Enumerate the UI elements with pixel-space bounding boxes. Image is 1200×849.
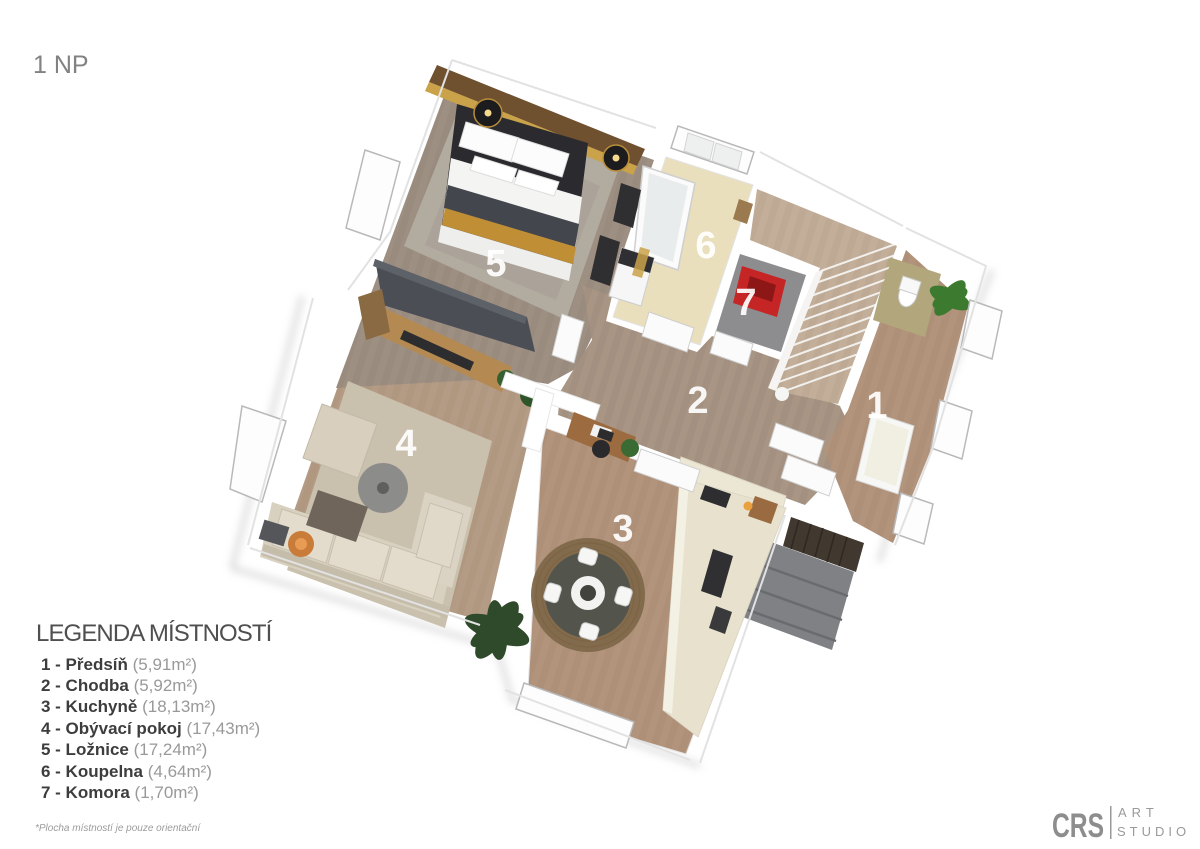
svg-text:5: 5 (485, 243, 506, 285)
svg-text:4: 4 (395, 423, 416, 465)
svg-text:2: 2 (687, 380, 708, 422)
svg-text:1 NP: 1 NP (33, 51, 89, 79)
svg-text:6: 6 (695, 225, 716, 267)
svg-text:7 - Komora (1,70m²): 7 - Komora (1,70m²) (41, 783, 199, 802)
svg-text:1 - Předsíň (5,91m²): 1 - Předsíň (5,91m²) (41, 655, 197, 674)
svg-text:2 - Chodba (5,92m²): 2 - Chodba (5,92m²) (41, 676, 198, 695)
svg-text:*Plocha místností je pouze ori: *Plocha místností je pouze orientační (35, 823, 201, 834)
svg-text:CRS: CRS (1052, 807, 1104, 845)
svg-text:STUDIO: STUDIO (1117, 824, 1190, 839)
svg-text:3 - Kuchyně (18,13m²): 3 - Kuchyně (18,13m²) (41, 697, 216, 716)
svg-text:LEGENDA MÍSTNOSTÍ: LEGENDA MÍSTNOSTÍ (36, 620, 273, 647)
svg-text:3: 3 (612, 508, 633, 550)
svg-text:5 - Ložnice (17,24m²): 5 - Ložnice (17,24m²) (41, 740, 207, 759)
svg-text:4 - Obývací pokoj (17,43m²): 4 - Obývací pokoj (17,43m²) (41, 719, 260, 738)
svg-text:6 - Koupelna (4,64m²): 6 - Koupelna (4,64m²) (41, 762, 212, 781)
svg-text:ART: ART (1118, 805, 1159, 820)
svg-text:7: 7 (735, 282, 756, 324)
svg-text:1: 1 (866, 385, 887, 427)
